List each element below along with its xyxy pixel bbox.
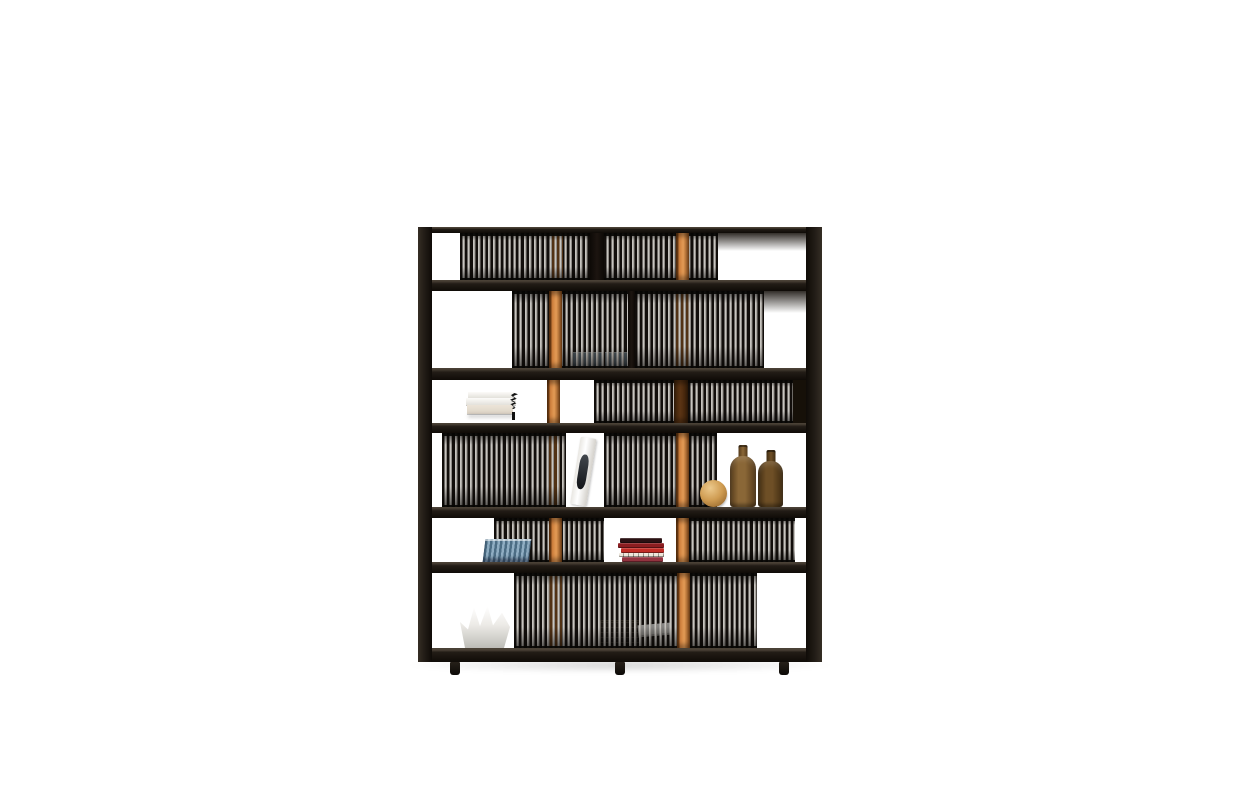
left-upright	[418, 227, 432, 662]
vertical-rods	[688, 380, 793, 423]
vertical-rods	[512, 291, 628, 368]
vertical-rods	[460, 233, 590, 280]
orange-post	[676, 233, 689, 280]
cd-slat-block	[688, 380, 793, 423]
cd-slat-block	[514, 573, 677, 648]
divider-panel	[628, 291, 635, 368]
cd-slat-block	[512, 291, 628, 368]
leaning-magazine	[570, 437, 596, 507]
orange-post	[547, 380, 560, 423]
shelf	[418, 423, 822, 433]
bottle-body	[758, 461, 783, 507]
red-book-stack	[617, 538, 664, 562]
book-shadow	[468, 414, 514, 418]
product-photo	[0, 0, 1235, 800]
foot	[779, 662, 789, 675]
cd-slat-block	[689, 518, 795, 562]
cd-slat-block	[635, 291, 764, 368]
amber-bottle-short	[758, 450, 783, 507]
row-5	[432, 518, 806, 562]
magazine-cover	[576, 454, 590, 490]
row-2	[432, 291, 806, 368]
vertical-rods	[594, 380, 674, 423]
book	[466, 398, 516, 405]
vertical-rods	[635, 291, 764, 368]
shelf	[418, 562, 822, 573]
vertical-rods	[442, 433, 566, 507]
white-origami-bowl	[460, 606, 510, 648]
orange-post	[549, 518, 562, 562]
top-shelf	[418, 227, 822, 233]
cd-slat-block	[442, 433, 566, 507]
orange-post	[676, 518, 689, 562]
foot	[615, 662, 625, 675]
base-shelf	[418, 648, 822, 662]
vertical-rods	[689, 518, 795, 562]
amber-bottle-tall	[730, 445, 756, 507]
bottle-body	[730, 456, 756, 507]
right-upright	[806, 227, 822, 662]
bookshelf	[418, 227, 822, 675]
orange-post	[676, 433, 689, 507]
cd-slat-block	[604, 233, 718, 280]
wooden-sphere	[700, 480, 727, 507]
blue-cd-stack	[483, 539, 532, 562]
vertical-rods	[604, 433, 676, 507]
shelf-shadow	[718, 233, 806, 251]
vertical-rods	[690, 573, 757, 648]
row-4	[432, 433, 806, 507]
vertical-rods	[514, 573, 677, 648]
orange-post-shadowed	[674, 380, 688, 423]
cd-slat-block	[460, 233, 590, 280]
orange-post	[677, 573, 690, 648]
row-3	[432, 380, 806, 423]
cd-slat-block	[594, 380, 674, 423]
foot	[450, 662, 460, 675]
row-6	[432, 573, 806, 648]
divider-panel	[590, 233, 604, 280]
shelf	[418, 368, 822, 380]
cd-slat-block	[604, 433, 676, 507]
end-panel	[793, 380, 806, 423]
row-1	[432, 233, 806, 280]
shelf	[418, 280, 822, 291]
white-book-stack	[466, 392, 516, 414]
cd-slat-block	[690, 573, 757, 648]
vertical-rods	[604, 233, 718, 280]
shelf	[418, 507, 822, 518]
book	[467, 405, 513, 414]
shelf-shadow	[764, 291, 806, 313]
orange-post	[549, 291, 562, 368]
